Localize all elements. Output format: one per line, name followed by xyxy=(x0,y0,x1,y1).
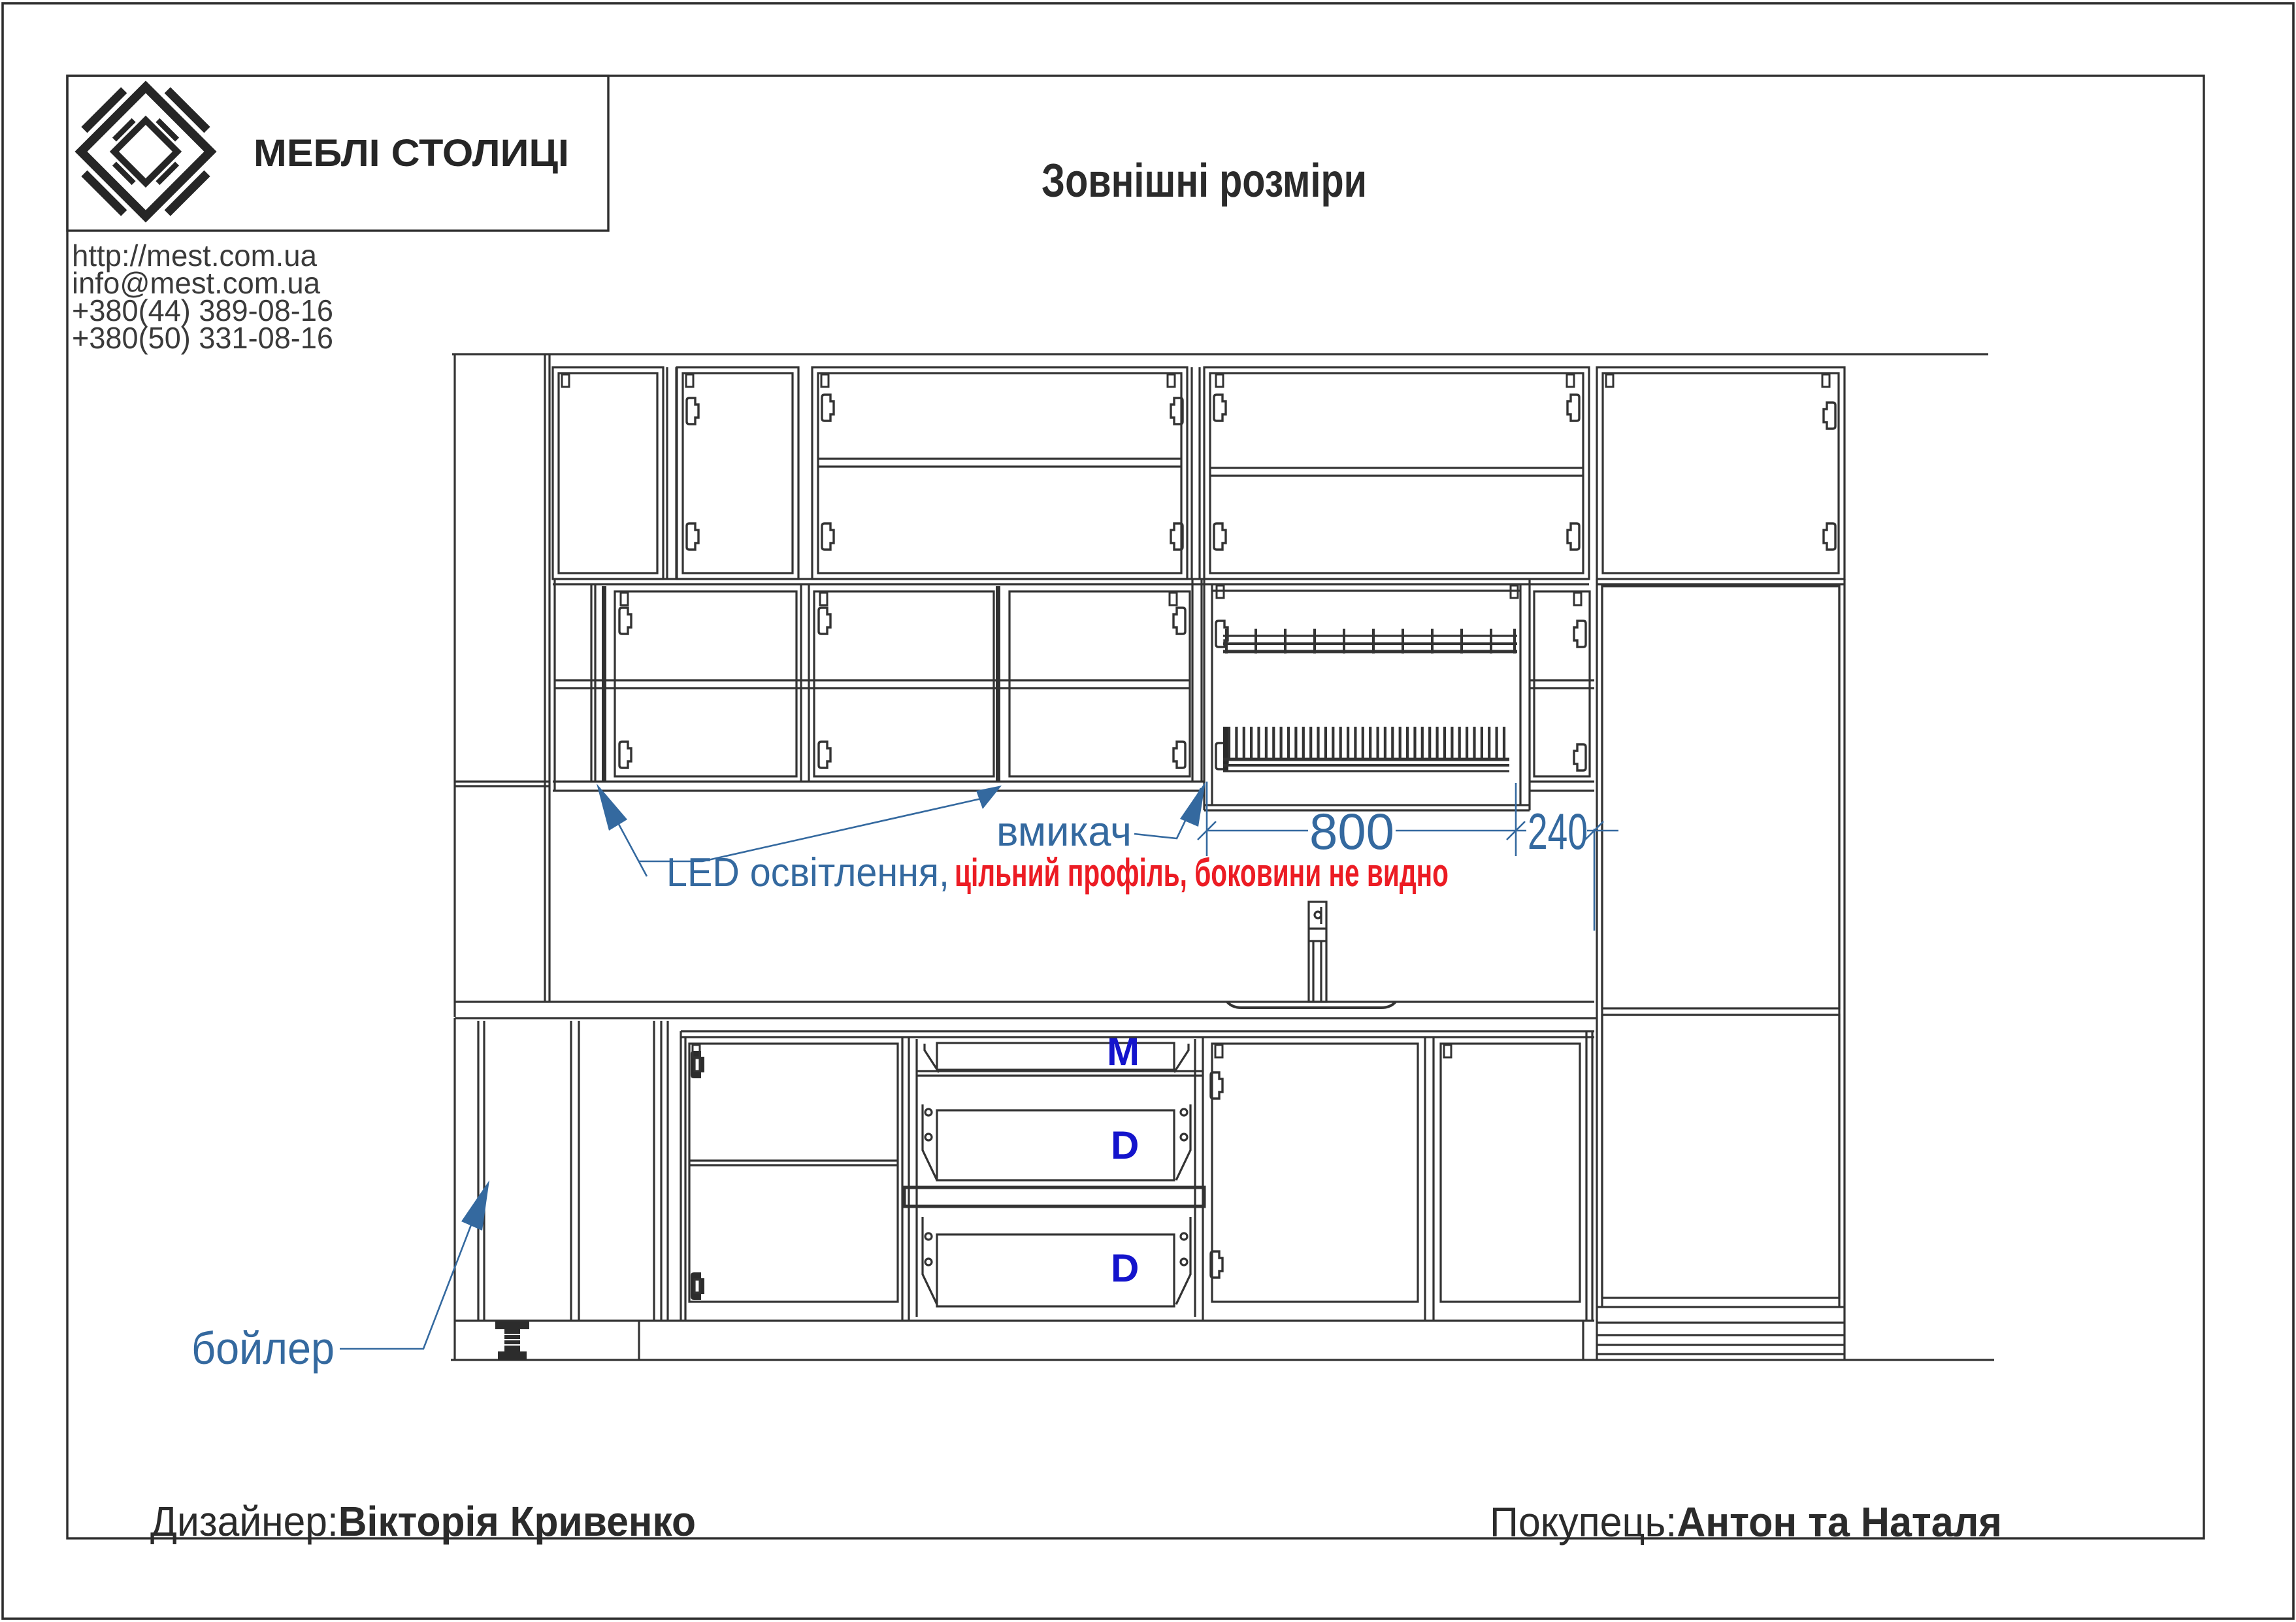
svg-text:Зовнішні розміри: Зовнішні розміри xyxy=(1041,155,1367,207)
svg-text:800: 800 xyxy=(1309,803,1394,860)
svg-text:вмикач: вмикач xyxy=(996,808,1132,855)
svg-text:D: D xyxy=(1111,1246,1139,1290)
svg-text:+380(50) 331-08-16: +380(50) 331-08-16 xyxy=(72,321,333,355)
svg-text:бойлер: бойлер xyxy=(191,1323,335,1374)
svg-text:Покупець:Антон та Наталя: Покупець:Антон та Наталя xyxy=(1490,1498,2002,1546)
svg-text:МЕБЛІ СТОЛИЦІ: МЕБЛІ СТОЛИЦІ xyxy=(254,132,569,174)
svg-text:D: D xyxy=(1111,1123,1139,1167)
svg-text:M: M xyxy=(1107,1030,1140,1074)
svg-text:240: 240 xyxy=(1528,803,1588,860)
svg-text:LED освітлення,: LED освітлення, xyxy=(666,850,949,895)
svg-text:Дизайнер:Вікторія Кривенко: Дизайнер:Вікторія Кривенко xyxy=(150,1498,696,1545)
